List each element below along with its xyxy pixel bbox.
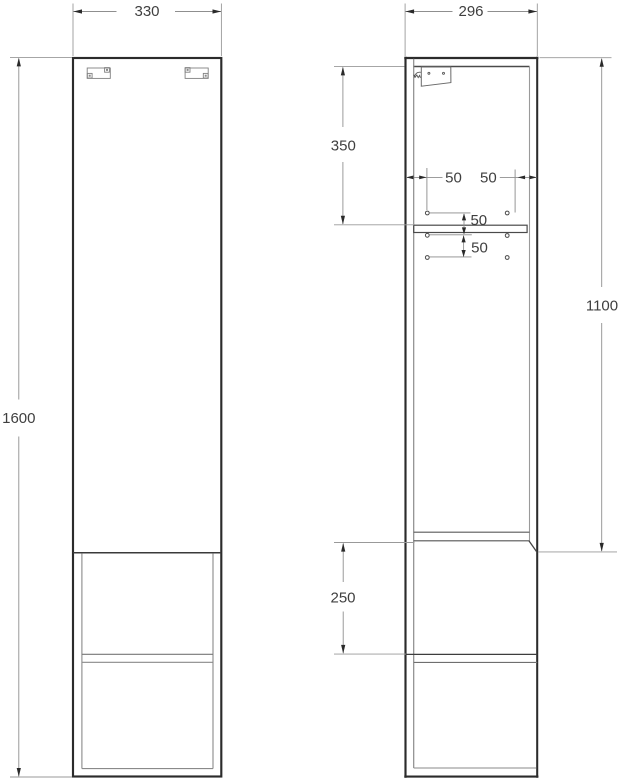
svg-text:250: 250	[330, 589, 355, 606]
svg-text:50: 50	[471, 240, 488, 257]
svg-text:50: 50	[480, 170, 497, 187]
svg-text:1100: 1100	[586, 297, 618, 314]
svg-text:50: 50	[470, 212, 487, 229]
svg-text:1600: 1600	[2, 410, 35, 427]
svg-text:350: 350	[331, 137, 356, 154]
svg-text:296: 296	[458, 3, 483, 20]
svg-text:330: 330	[134, 3, 159, 20]
svg-text:50: 50	[445, 170, 462, 187]
